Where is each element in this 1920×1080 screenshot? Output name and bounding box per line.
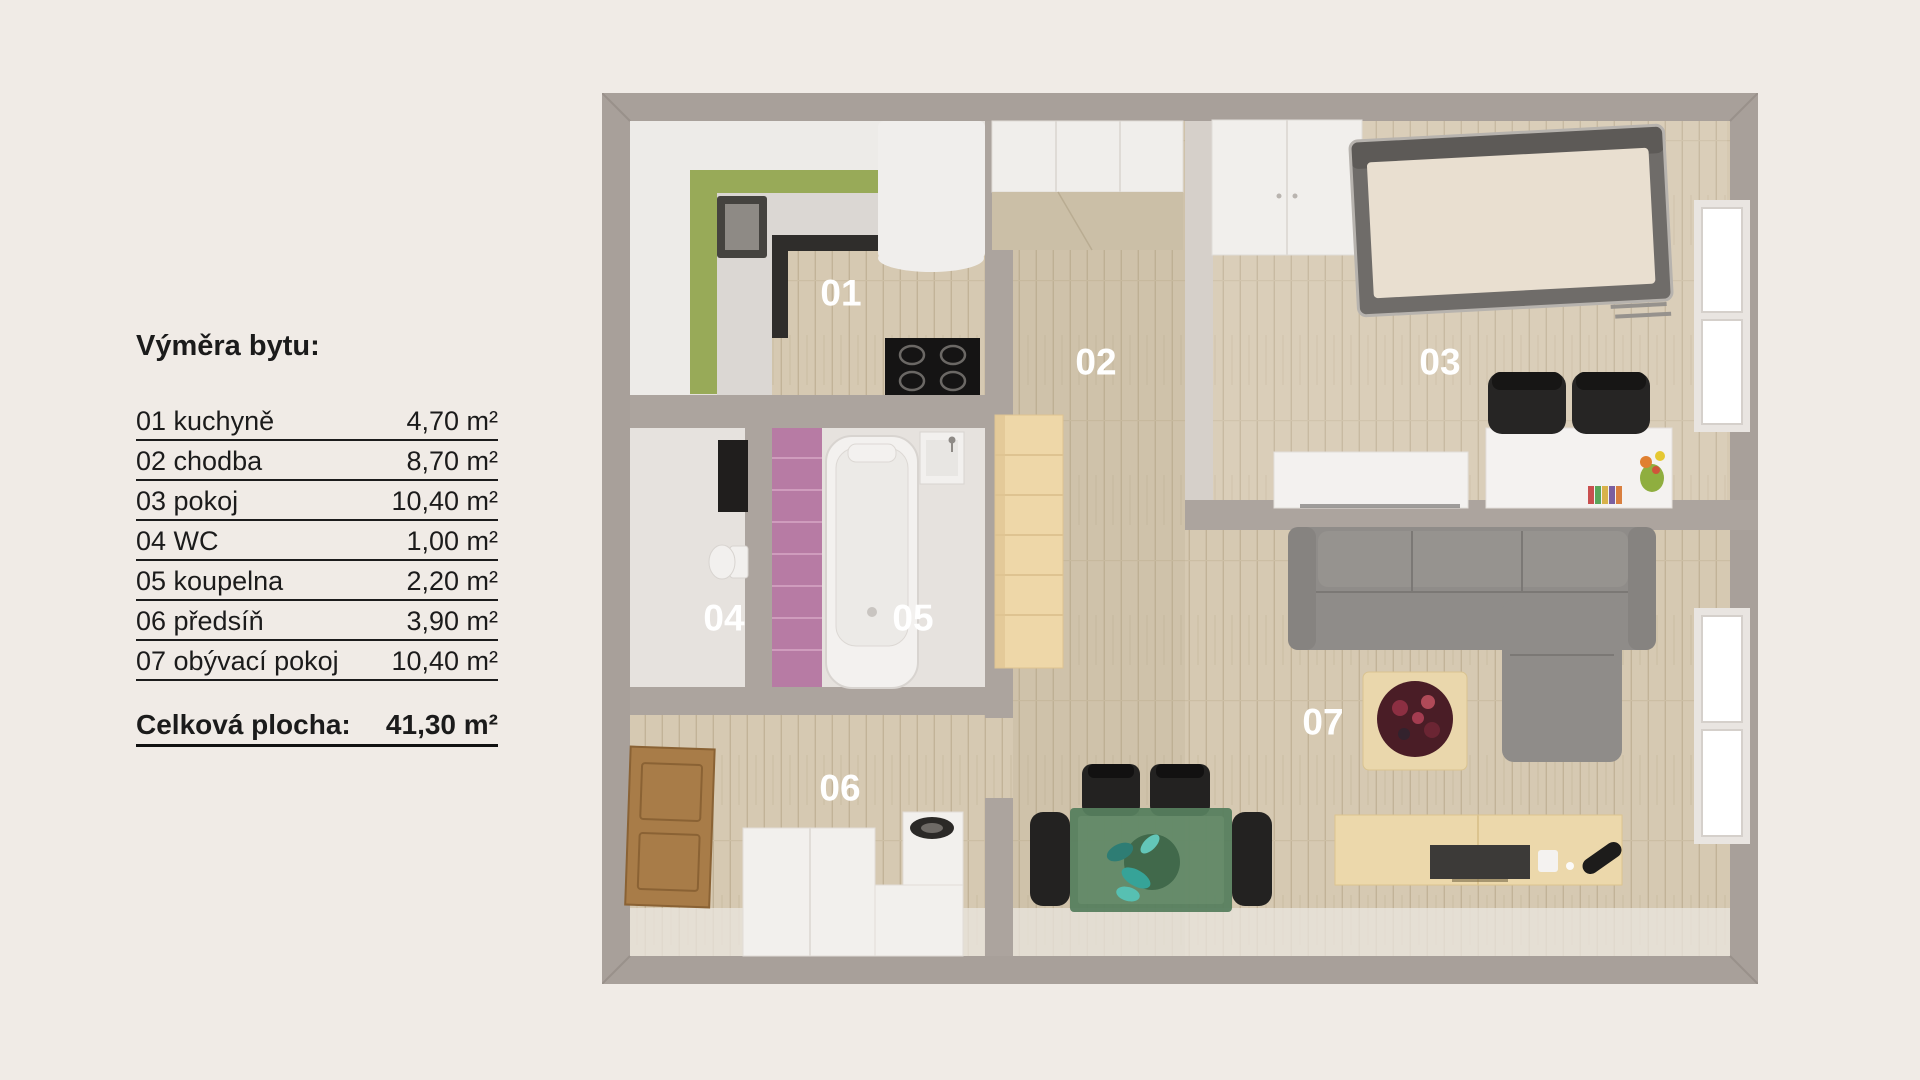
- tv: [1430, 845, 1530, 879]
- legend-room-area: 10,40 m²: [391, 487, 498, 516]
- room-label-01: 01: [820, 273, 861, 314]
- legend-room-name: 04 WC: [136, 527, 219, 556]
- entry-door: [625, 747, 714, 908]
- kitchen-counter-top: [772, 193, 886, 235]
- legend: Výměra bytu: 01 kuchyně 4,70 m² 02 chodb…: [136, 330, 498, 747]
- legend-room-area: 3,90 m²: [406, 607, 498, 636]
- legend-room-area: 4,70 m²: [406, 407, 498, 436]
- legend-row-entry: 06 předsíň 3,90 m²: [136, 607, 498, 641]
- legend-total-value: 41,30 m²: [386, 709, 498, 741]
- wc-niche: [718, 440, 748, 512]
- sideboard: [1274, 452, 1468, 508]
- legend-total-label: Celková plocha:: [136, 709, 351, 741]
- room-label-03: 03: [1419, 342, 1460, 383]
- room-label-02: 02: [1075, 342, 1116, 383]
- coffee-table: [1363, 672, 1467, 770]
- legend-row-kitchen: 01 kuchyně 4,70 m²: [136, 407, 498, 441]
- fridge-front: [878, 244, 984, 272]
- legend-room-name: 05 koupelna: [136, 567, 283, 596]
- bathroom-sink: [920, 432, 964, 484]
- hallway-tall-cabinet: [995, 415, 1063, 668]
- legend-row-bathroom: 05 koupelna 2,20 m²: [136, 567, 498, 601]
- legend-room-area: 2,20 m²: [406, 567, 498, 596]
- legend-room-name: 06 předsíň: [136, 607, 264, 636]
- legend-room-area: 1,00 m²: [406, 527, 498, 556]
- stove: [885, 338, 980, 395]
- room-label-04: 04: [703, 598, 745, 639]
- legend-row-living: 07 obývací pokoj 10,40 m²: [136, 647, 498, 681]
- legend-room-name: 03 pokoj: [136, 487, 238, 516]
- hallway-cabinets: [992, 121, 1183, 250]
- legend-row-hallway: 02 chodba 8,70 m²: [136, 447, 498, 481]
- room-label-06: 06: [819, 768, 860, 809]
- tv-stand: [1335, 815, 1625, 885]
- legend-row-room: 03 pokoj 10,40 m²: [136, 487, 498, 521]
- floorplan-render: 01 02 03 04 05 06 07: [602, 93, 1758, 984]
- bedroom-wardrobe: [1212, 120, 1362, 255]
- kitchen-backsplash-top: [690, 170, 886, 193]
- legend-room-area: 10,40 m²: [391, 647, 498, 676]
- legend-row-wc: 04 WC 1,00 m²: [136, 527, 498, 561]
- fridge: [878, 121, 985, 259]
- bathtub: [826, 436, 918, 688]
- room-label-07: 07: [1302, 702, 1343, 743]
- toilet: [709, 545, 748, 579]
- washing-machine: [910, 817, 954, 839]
- bedroom-window: [1694, 200, 1750, 432]
- legend-total: Celková plocha: 41,30 m²: [136, 709, 498, 747]
- bed: [1350, 125, 1673, 330]
- legend-title: Výměra bytu:: [136, 330, 498, 363]
- legend-room-name: 02 chodba: [136, 447, 262, 476]
- room-label-05: 05: [892, 598, 933, 639]
- living-room-window: [1694, 608, 1750, 844]
- page: Výměra bytu: 01 kuchyně 4,70 m² 02 chodb…: [0, 0, 1920, 1080]
- legend-room-name: 07 obývací pokoj: [136, 647, 339, 676]
- dining-table: [1070, 808, 1232, 912]
- kitchen-backsplash: [690, 170, 717, 394]
- kitchen-sink-basin: [725, 204, 759, 250]
- desk-books: [1588, 486, 1622, 504]
- bathroom-tile-wall: [772, 428, 822, 687]
- legend-room-area: 8,70 m²: [406, 447, 498, 476]
- kitchen-cabinet-top: [630, 121, 886, 170]
- legend-room-name: 01 kuchyně: [136, 407, 274, 436]
